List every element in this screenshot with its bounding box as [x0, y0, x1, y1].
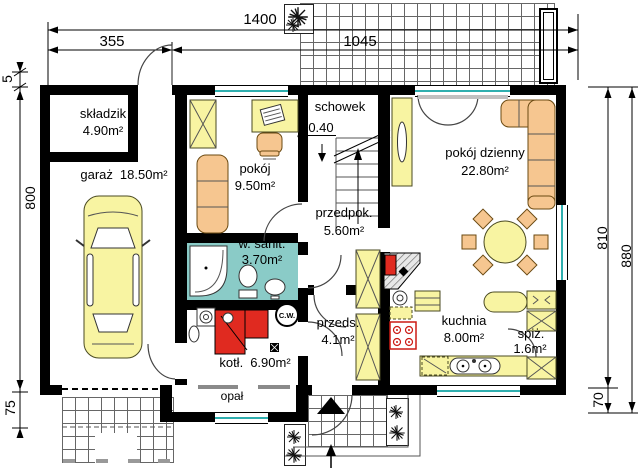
- porch-planter-right: [386, 398, 409, 446]
- kitchen-sink: [450, 358, 500, 374]
- window-living-east: [556, 205, 568, 280]
- room-label-wsanit: w. sanit.: [227, 237, 297, 251]
- opening-living-passage: [378, 228, 390, 252]
- window-kitchen: [437, 385, 520, 397]
- room-area-pokoj-dzienny: 22.80m²: [425, 164, 545, 178]
- room-name: garaż: [80, 168, 113, 182]
- window-pokoj: [215, 85, 288, 97]
- opening-kotl-przeds-door: [298, 322, 308, 356]
- room-area-wsanit: 3.70m²: [227, 253, 297, 267]
- room-area-przedpok: 5.60m²: [310, 224, 378, 238]
- room-label-kuchnia: kuchnia: [430, 314, 498, 328]
- room-label-opal: opał: [204, 390, 260, 403]
- opening-pokoj-door: [298, 202, 308, 242]
- room-name: kotł.: [219, 356, 243, 370]
- washing-machine: [197, 308, 215, 326]
- room-area: 18.50m²: [120, 168, 168, 182]
- wall-przeds-top-b: [346, 285, 378, 295]
- room-label-schowek: schowek: [304, 100, 376, 114]
- window-fuel-bay: [215, 412, 268, 424]
- terrace-railing: [539, 8, 558, 84]
- wall-bath-bottom: [187, 300, 308, 310]
- opening-entrance-door: [312, 385, 352, 395]
- room-area: 6.90m²: [250, 356, 290, 370]
- wall-bay-bottom-a: [160, 412, 215, 422]
- room-area-spiz: 1.6m²: [504, 342, 556, 356]
- dim-right-outer: 880: [618, 234, 634, 278]
- desk: [252, 100, 298, 132]
- room-label-kotl: kotł. 6.90m²: [200, 356, 310, 370]
- floor-drain: [270, 343, 279, 352]
- room-label-skladzik: składzik: [58, 107, 148, 121]
- wall-stairs: [378, 95, 390, 228]
- wardrobe: [190, 100, 216, 148]
- room-area-pokoj: 9.50m²: [213, 179, 297, 193]
- dim-top-right: 1045: [334, 33, 386, 50]
- floor-plan: składzik 4.90m² garaż 18.50m² pokój 9.50…: [0, 0, 638, 474]
- room-label-przedpok: przedpok.: [310, 206, 378, 220]
- room-area-kuchnia: 8.00m²: [430, 331, 498, 345]
- stove: [390, 322, 416, 349]
- level-marker: -0.40: [302, 121, 336, 136]
- room-label-spiz: spiż.: [508, 327, 554, 341]
- opening-garage-kotl-door: [175, 343, 187, 379]
- hot-water-tank-label: C.W.: [276, 311, 298, 320]
- dim-top-total: 1400: [232, 11, 288, 28]
- window-terrace-door: [415, 85, 510, 97]
- wall-bay-right: [296, 395, 308, 422]
- terrace-planter: [284, 4, 314, 34]
- opening-side-door: [138, 85, 172, 95]
- porch-tiles: [308, 395, 388, 447]
- wall-przeds-top-a: [308, 285, 314, 295]
- wall-kitchen-west: [378, 252, 390, 395]
- dim-left-bottom: 75: [2, 392, 18, 424]
- room-label-przeds: przeds.: [308, 316, 368, 330]
- dim-right-inner: 810: [594, 216, 610, 260]
- dim-left-top: 5: [0, 69, 15, 89]
- porch-planter-left: [284, 424, 306, 466]
- tv-cabinet: [392, 98, 412, 186]
- kitchen-pot-inner: [397, 295, 403, 301]
- wall-skladzik-h: [48, 152, 130, 162]
- dim-top-left: 355: [88, 33, 136, 50]
- boiler-room-sink: [189, 326, 199, 342]
- dim-left-middle: 800: [22, 176, 38, 220]
- wall-left: [40, 85, 50, 395]
- hall-closets: [356, 250, 380, 380]
- room-label-pokoj-dzienny: pokój dzienny: [425, 146, 545, 160]
- boiler: [215, 310, 268, 354]
- room-label-pokoj: pokój: [213, 162, 297, 176]
- dining-set: [462, 209, 548, 275]
- opening-bath-door: [298, 255, 308, 288]
- level-marker-icon: ▽: [297, 134, 305, 145]
- room-area-przeds: 4.1m²: [308, 333, 368, 347]
- room-label-garaz: garaż 18.50m²: [68, 168, 180, 182]
- opening-garage-door: [62, 385, 160, 395]
- car: [76, 196, 150, 358]
- dim-right-bottom: 70: [590, 384, 606, 416]
- desk-chair: [257, 133, 282, 159]
- driveway-notch: [95, 433, 137, 463]
- kitchen-pot: [393, 291, 407, 305]
- room-area-skladzik: 4.90m²: [58, 124, 148, 138]
